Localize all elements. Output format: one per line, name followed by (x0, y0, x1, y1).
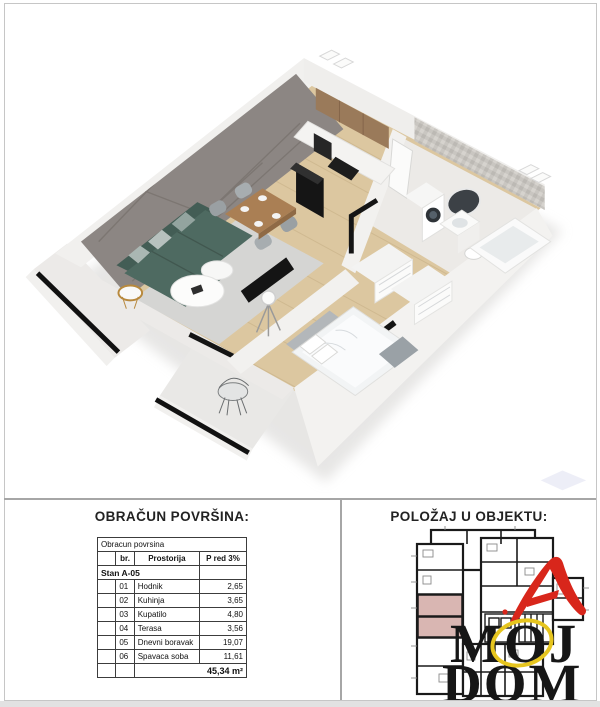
col-area: P red 3% (200, 552, 247, 566)
position-title: POLOŽAJ U OBJEKTU: (342, 509, 596, 524)
unit-label: Stan A-05 (98, 566, 200, 580)
col-br: br. (116, 552, 134, 566)
position-panel: POLOŽAJ U OBJEKTU: (342, 500, 596, 700)
flyer-page: OBRAČUN POVRŠINA: Obracun povrsina br. P… (0, 0, 600, 707)
area-title: OBRAČUN POVRŠINA: (4, 509, 340, 524)
area-table: Obracun povrsina br. Prostorija P red 3%… (97, 537, 247, 678)
table-row: 03Kupatilo4,80 (98, 608, 247, 622)
table-header-row: br. Prostorija P red 3% (98, 552, 247, 566)
table-row: 02Kuhinja3,65 (98, 594, 247, 608)
bottom-margin-band (0, 701, 600, 707)
table-caption-row: Obracun povrsina (98, 538, 247, 552)
col-room: Prostorija (134, 552, 199, 566)
table-group-row: Stan A-05 (98, 566, 247, 580)
total-area: 45,34 m² (134, 664, 246, 678)
table-row: 05Dnevni boravak19,07 (98, 636, 247, 650)
table-row: 04Terasa3,56 (98, 622, 247, 636)
table-row: 06Spavaca soba11,61 (98, 650, 247, 664)
area-panel: OBRAČUN POVRŠINA: Obracun povrsina br. P… (4, 500, 340, 700)
table-caption: Obracun povrsina (98, 538, 247, 552)
table-total-row: 45,34 m² (98, 664, 247, 678)
table-row: 01Hodnik2,65 (98, 580, 247, 594)
